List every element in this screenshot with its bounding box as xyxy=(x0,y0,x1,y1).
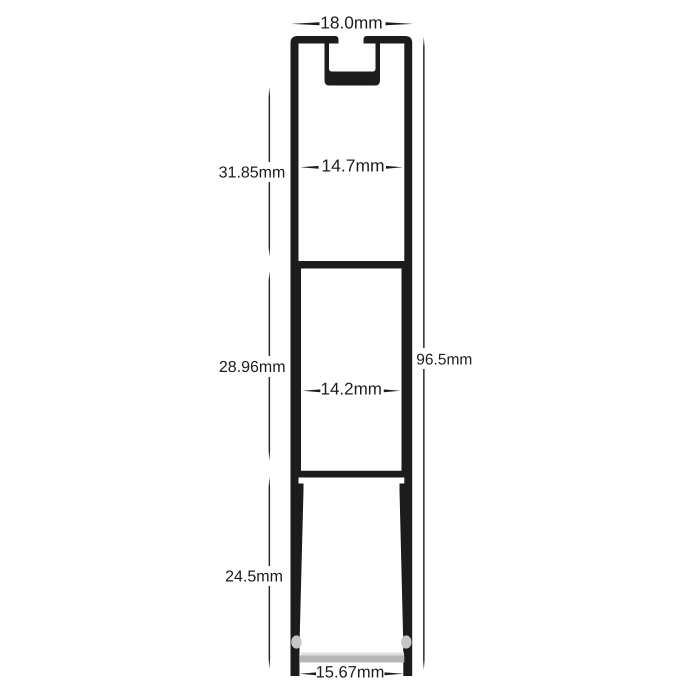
svg-text:14.7mm: 14.7mm xyxy=(321,155,384,175)
svg-text:28.96mm: 28.96mm xyxy=(219,359,286,376)
svg-text:15.67mm: 15.67mm xyxy=(316,664,385,682)
svg-text:96.5mm: 96.5mm xyxy=(416,351,472,368)
svg-text:18.0mm: 18.0mm xyxy=(320,13,382,33)
svg-text:31.85mm: 31.85mm xyxy=(219,165,286,182)
svg-text:24.5mm: 24.5mm xyxy=(225,569,283,586)
svg-text:14.2mm: 14.2mm xyxy=(320,380,381,399)
